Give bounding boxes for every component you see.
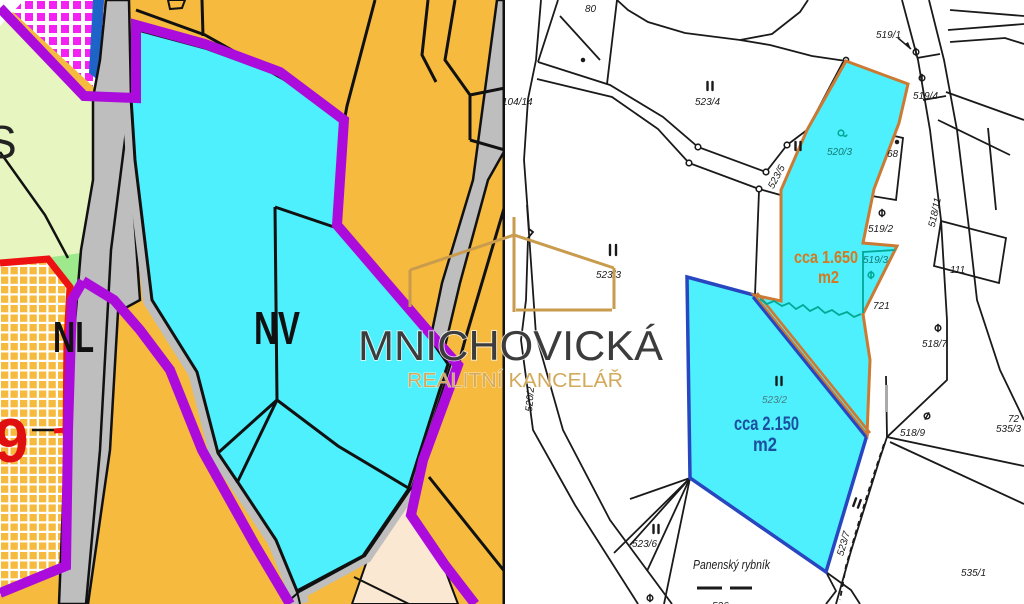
svg-text:S: S: [0, 116, 17, 168]
svg-text:NV: NV: [254, 302, 300, 354]
svg-text:Panenský rybník: Panenský rybník: [693, 558, 771, 572]
svg-text:523/2: 523/2: [762, 395, 787, 406]
svg-text:m2: m2: [818, 267, 839, 287]
svg-text:111: 111: [950, 265, 965, 276]
svg-text:REALITNÍ KANCELÁŘ: REALITNÍ KANCELÁŘ: [407, 369, 623, 392]
svg-text:68: 68: [887, 149, 899, 160]
svg-text:518/7: 518/7: [922, 339, 947, 350]
svg-text:523/3: 523/3: [596, 270, 621, 281]
svg-text:cca 1.650: cca 1.650: [794, 247, 858, 267]
svg-text:cca 2.150: cca 2.150: [734, 414, 799, 435]
svg-text:523/6: 523/6: [632, 539, 657, 550]
svg-text:80: 80: [585, 4, 597, 15]
svg-text:520/3: 520/3: [827, 147, 852, 158]
svg-text:523/4: 523/4: [695, 97, 720, 108]
svg-text:519/4: 519/4: [913, 91, 938, 102]
svg-text:721: 721: [873, 301, 890, 312]
svg-text:519/2: 519/2: [868, 224, 893, 235]
svg-text:MNICHOVICKÁ: MNICHOVICKÁ: [358, 322, 663, 369]
svg-text:535/1: 535/1: [961, 568, 986, 579]
svg-text:m2: m2: [753, 435, 777, 456]
svg-text:535/3: 535/3: [996, 424, 1021, 435]
svg-text:519/3: 519/3: [863, 255, 888, 266]
svg-text:9: 9: [0, 407, 28, 476]
svg-text:518/9: 518/9: [900, 428, 925, 439]
svg-text:NL: NL: [53, 313, 94, 362]
svg-text:104/14: 104/14: [502, 97, 533, 108]
svg-text:519/1: 519/1: [876, 30, 901, 41]
